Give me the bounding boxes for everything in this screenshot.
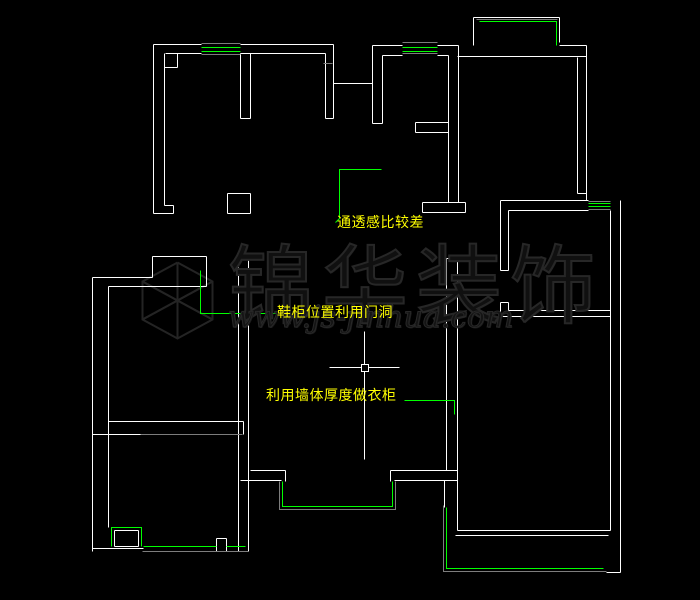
annotation-shoe-cabinet: 鞋柜位置利用门洞 [277, 306, 393, 320]
annotation-ventilation: 通透感比较差 [337, 216, 424, 230]
annotation-wardrobe: 利用墙体厚度做衣柜 [266, 389, 397, 403]
cad-drawing-canvas[interactable]: 锦华装饰 www.js-jinhua.com 通透感比较差 鞋柜位置利用门洞 利… [0, 0, 700, 600]
